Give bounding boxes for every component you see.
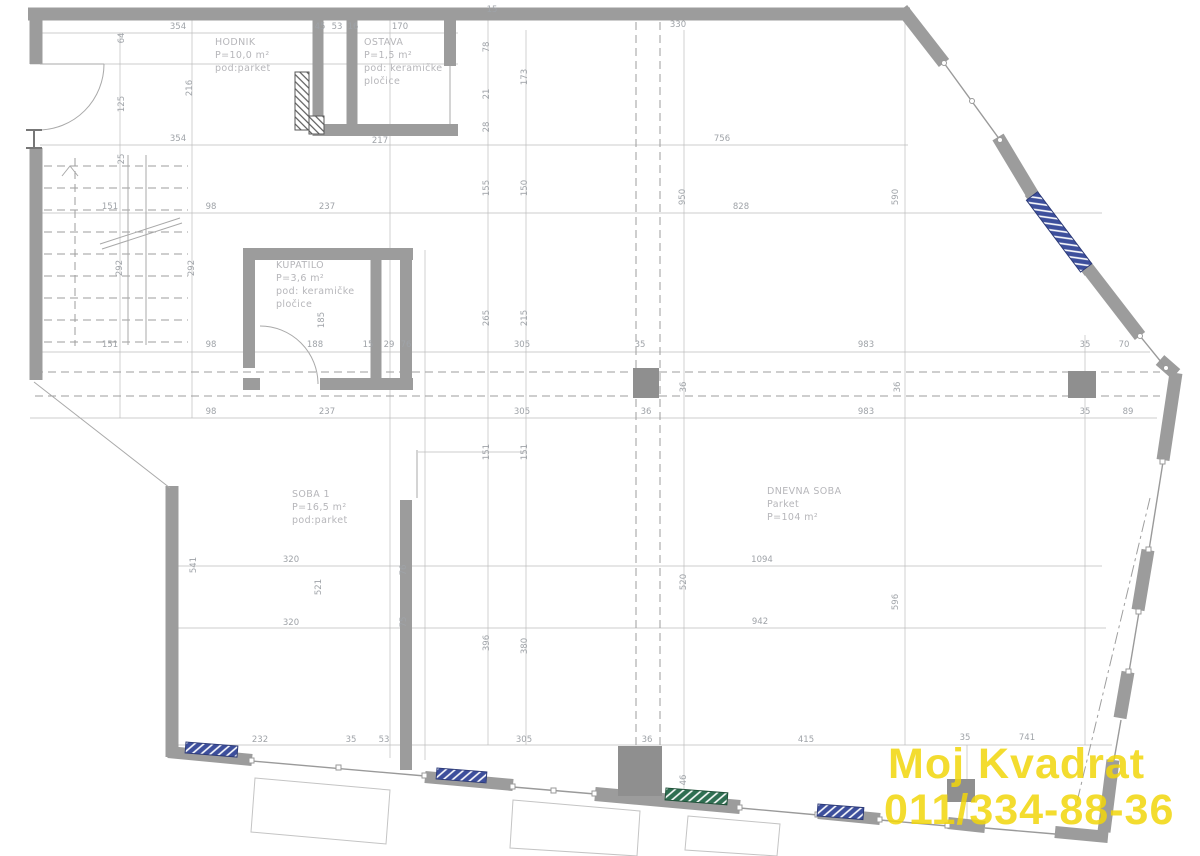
dimension-label: 46 xyxy=(679,775,689,786)
windows xyxy=(249,61,1169,835)
floor-plan-canvas: 3544553161701533064125216782128173354217… xyxy=(0,0,1200,856)
dimension-label: 305 xyxy=(516,735,532,745)
dimension-label: 232 xyxy=(252,735,268,745)
dimension-label: 29 xyxy=(384,340,395,350)
room-label-kupatilo: P=3,6 m² xyxy=(276,273,324,284)
dimension-label: 89 xyxy=(1123,407,1134,417)
dimension-label: 265 xyxy=(482,310,492,326)
interior-walls xyxy=(243,20,458,770)
floor-plan-drawing: 3544553161701533064125216782128173354217… xyxy=(0,0,1200,856)
radiator-blue-diagonal xyxy=(1026,192,1091,272)
room-label-soba-1: pod:parket xyxy=(292,515,348,526)
room-label-dnevna-soba: DNEVNA SOBA xyxy=(767,486,842,497)
dimension-label: 1094 xyxy=(751,555,773,565)
dimension-label: 36 xyxy=(679,382,689,393)
room-label-dnevna-soba: P=104 m² xyxy=(767,512,818,523)
dimension-label: 590 xyxy=(891,189,901,205)
window-topright xyxy=(942,61,1003,143)
dimension-label: 28 xyxy=(482,122,492,133)
balconies xyxy=(251,778,780,856)
dimension-label: 380 xyxy=(520,638,530,654)
dimension-label: 216 xyxy=(185,80,195,96)
dimension-label: 151 xyxy=(102,340,118,350)
dimension-label: 36 xyxy=(893,382,903,393)
dimension-lines xyxy=(30,10,1157,826)
dimension-label: 53 xyxy=(379,735,390,745)
dimension-label: 217 xyxy=(372,136,388,146)
dimension-label: 35 xyxy=(346,735,357,745)
balcony-outline xyxy=(685,816,780,856)
room-label-kupatilo: pod: keramičke xyxy=(276,286,355,297)
dimension-label: 21 xyxy=(482,89,492,100)
room-label-soba-1: P=16,5 m² xyxy=(292,502,347,513)
dimension-label: 292 xyxy=(115,260,125,276)
dimension-label: 942 xyxy=(752,617,768,627)
dimension-label: 125 xyxy=(117,96,127,112)
wall-stub xyxy=(618,746,662,796)
dimension-labels: 3544553161701533064125216782128173354217… xyxy=(102,5,1134,785)
dimension-label: 70 xyxy=(1119,340,1130,350)
room-label-ostava: pod: keramičke xyxy=(364,63,443,74)
dimension-label: 237 xyxy=(319,407,335,417)
dimension-label: 320 xyxy=(283,555,299,565)
doors xyxy=(26,64,1150,806)
dimension-label: 305 xyxy=(514,407,530,417)
balcony-outline xyxy=(510,800,640,856)
dimension-label: 36 xyxy=(641,407,652,417)
dimension-label: 292 xyxy=(187,260,197,276)
dimension-label: 215 xyxy=(520,310,530,326)
room-label-soba-1: SOBA 1 xyxy=(292,489,330,500)
room-label-hodnik: P=10,0 m² xyxy=(215,50,270,61)
dimension-label: 25 xyxy=(117,154,127,165)
dimension-label: 950 xyxy=(678,189,688,205)
dimension-label: 541 xyxy=(189,557,199,573)
staircase xyxy=(44,155,188,346)
dimension-label: 36 xyxy=(642,735,653,745)
dimension-label: 415 xyxy=(798,735,814,745)
outer-walls xyxy=(28,8,1176,837)
dimension-label: 16 xyxy=(348,22,359,32)
watermark-brand: Moj Kvadrat xyxy=(888,740,1145,788)
wall-topright-diagonal xyxy=(902,9,944,63)
dimension-label: 354 xyxy=(170,134,186,144)
stair-break-line xyxy=(100,218,180,244)
dimension-label: 151 xyxy=(482,444,492,460)
dimension-label: 756 xyxy=(714,134,730,144)
dimension-label: 76 xyxy=(399,565,409,576)
stair-direction-arrow xyxy=(62,166,78,176)
watermark: Moj Kvadrat 011/334-88-36 xyxy=(884,740,1174,834)
dimension-label: 170 xyxy=(392,22,408,32)
dimension-label: 98 xyxy=(206,202,217,212)
dimension-label: 237 xyxy=(319,202,335,212)
dimension-label: 151 xyxy=(520,444,530,460)
watermark-phone: 011/334-88-36 xyxy=(884,786,1174,834)
dimension-label: 983 xyxy=(858,340,874,350)
dimension-label: 521 xyxy=(314,579,324,595)
entry-door-arc xyxy=(38,64,104,130)
room-label-ostava: OSTAVA xyxy=(364,37,403,48)
dimension-label: 983 xyxy=(858,407,874,417)
dimension-label: 64 xyxy=(117,33,127,44)
column xyxy=(1068,371,1096,398)
steel-column-symbol xyxy=(26,130,42,148)
dimension-label: 45 xyxy=(315,22,326,32)
dimension-label: 98 xyxy=(206,340,217,350)
kupatilo-door-arc xyxy=(260,326,318,384)
dimension-label: 155 xyxy=(482,180,492,196)
room-label-ostava: P=1,5 m² xyxy=(364,50,412,61)
room-label-ostava: pločice xyxy=(364,76,400,87)
dimension-label: 151 xyxy=(102,202,118,212)
balcony-outline xyxy=(251,778,390,844)
axis-lines xyxy=(35,22,1160,768)
dimension-label: 305 xyxy=(514,340,530,350)
dimension-label: 188 xyxy=(307,340,323,350)
wall-left-step-line xyxy=(34,382,170,488)
dimension-label: 53 xyxy=(332,22,343,32)
dimension-label: 320 xyxy=(283,618,299,628)
dimension-label: 15 xyxy=(363,340,374,350)
dimension-label: 330 xyxy=(670,20,686,30)
dimension-label: 173 xyxy=(520,69,530,85)
dimension-label: 78 xyxy=(482,42,492,53)
dimension-label: 150 xyxy=(520,180,530,196)
dimension-label: 354 xyxy=(170,22,186,32)
dimension-label: 828 xyxy=(733,202,749,212)
dimension-label: 520 xyxy=(679,574,689,590)
dimension-label: 596 xyxy=(891,594,901,610)
room-label-hodnik: pod:parket xyxy=(215,63,271,74)
column xyxy=(633,368,659,398)
dimension-label: 75 xyxy=(399,617,409,628)
room-label-kupatilo: KUPATILO xyxy=(276,260,324,271)
dimension-label: 15 xyxy=(487,5,498,15)
dimension-label: 35 xyxy=(1080,340,1091,350)
dimension-label: 76 xyxy=(401,340,412,350)
wall-right-diagonal xyxy=(1163,373,1176,460)
dimension-label: 98 xyxy=(206,407,217,417)
dimension-label: 185 xyxy=(317,312,327,328)
room-label-hodnik: HODNIK xyxy=(215,37,256,48)
dimension-label: 35 xyxy=(635,340,646,350)
dimension-label: 35 xyxy=(1080,407,1091,417)
room-label-dnevna-soba: Parket xyxy=(767,499,799,510)
dimension-label: 396 xyxy=(482,635,492,651)
room-label-kupatilo: pločice xyxy=(276,299,312,310)
